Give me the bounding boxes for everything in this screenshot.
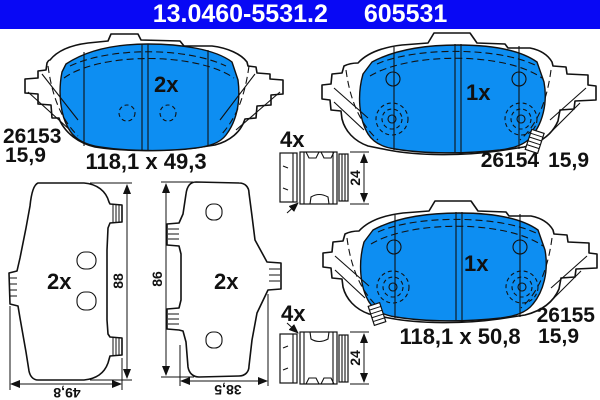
pad-dimensions-26153: 118,1 x 49,3 [85, 149, 206, 174]
width-value-left: 49,8 [53, 385, 80, 400]
pad-front-view-26153: 2x [25, 34, 283, 151]
thickness-26154: 15,9 [548, 149, 589, 172]
quantity-label-26154: 1x [466, 80, 491, 105]
quantity-label-clip-bottom: 4x [281, 301, 306, 326]
clip-height-top: 24 [347, 170, 363, 186]
pad-side-view-middle: 2x [167, 182, 281, 377]
thickness-26155: 15,9 [538, 325, 579, 348]
header-bar: 13.0460-5531.2 605531 [0, 0, 600, 29]
clip-height-bottom: 24 [347, 350, 363, 366]
quantity-label-side-left: 2x [47, 269, 72, 294]
wva-number-26155: 26155 [537, 304, 596, 327]
part-number: 13.0460-5531.2 [153, 0, 328, 29]
quantity-label-26153: 2x [154, 72, 179, 97]
pad-label-26154: 2615415,9 [481, 149, 589, 172]
fitting-clip-bottom: 24 4x [280, 301, 369, 384]
height-value-left: 88 [110, 273, 126, 289]
brake-pad-technical-drawing: 13.0460-5531.2 605531 [0, 0, 600, 400]
quantity-label-side-middle: 2x [214, 269, 239, 294]
pad-front-view-26154: 1x [322, 33, 596, 155]
thickness-26153: 15,9 [5, 144, 46, 167]
wva-number-26154: 26154 [481, 149, 540, 172]
drawing-canvas: 2x 26153 15,9 118,1 x 49,3 1x 2615415,9 [0, 29, 600, 400]
height-value-middle: 86 [149, 271, 165, 287]
quantity-label-26155: 1x [464, 251, 489, 276]
quantity-label-clip-top: 4x [280, 127, 305, 152]
pad-dimensions-26155: 118,1 x 50,8 [399, 324, 520, 349]
pad-side-view-left: 2x [9, 183, 122, 380]
width-value-middle: 38,5 [214, 382, 241, 398]
reference-number: 605531 [364, 0, 447, 29]
